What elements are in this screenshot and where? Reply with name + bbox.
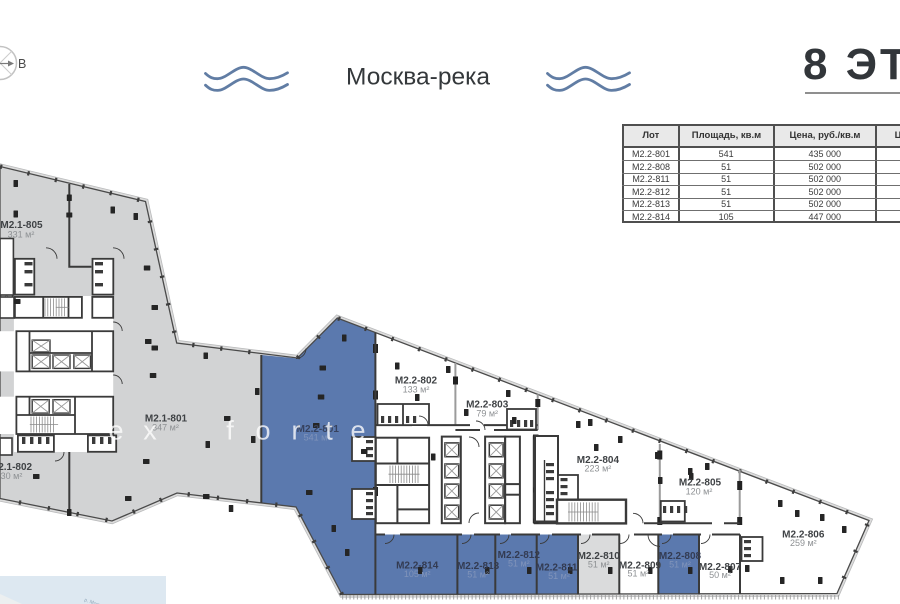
svg-text:о: о	[255, 416, 270, 446]
svg-text:120 м²: 120 м²	[686, 487, 713, 497]
svg-text:51 м²: 51 м²	[669, 560, 691, 570]
svg-text:79 м²: 79 м²	[476, 409, 498, 419]
svg-text:51 м²: 51 м²	[588, 560, 610, 570]
svg-text:730 м²: 730 м²	[0, 471, 22, 481]
svg-text:51 м²: 51 м²	[467, 570, 489, 580]
svg-text:е: е	[350, 416, 365, 446]
svg-text:х: х	[143, 416, 157, 446]
svg-text:Москва-река: Москва-река	[346, 64, 490, 91]
svg-text:51 м²: 51 м²	[627, 569, 649, 579]
svg-text:259 м²: 259 м²	[790, 538, 817, 548]
svg-text:133 м²: 133 м²	[403, 385, 430, 395]
svg-text:51 м²: 51 м²	[508, 559, 530, 569]
svg-text:t: t	[325, 416, 333, 446]
svg-text:50 м²: 50 м²	[709, 570, 731, 580]
svg-text:r: r	[292, 416, 301, 446]
svg-text:105 м²: 105 м²	[404, 569, 431, 579]
svg-text:223 м²: 223 м²	[585, 464, 612, 474]
svg-text:е: е	[108, 416, 123, 446]
svg-text:331 м²: 331 м²	[8, 230, 35, 240]
svg-text:51 м²: 51 м²	[548, 571, 570, 581]
svg-text:f: f	[226, 416, 234, 446]
svg-text:В: В	[18, 57, 26, 71]
